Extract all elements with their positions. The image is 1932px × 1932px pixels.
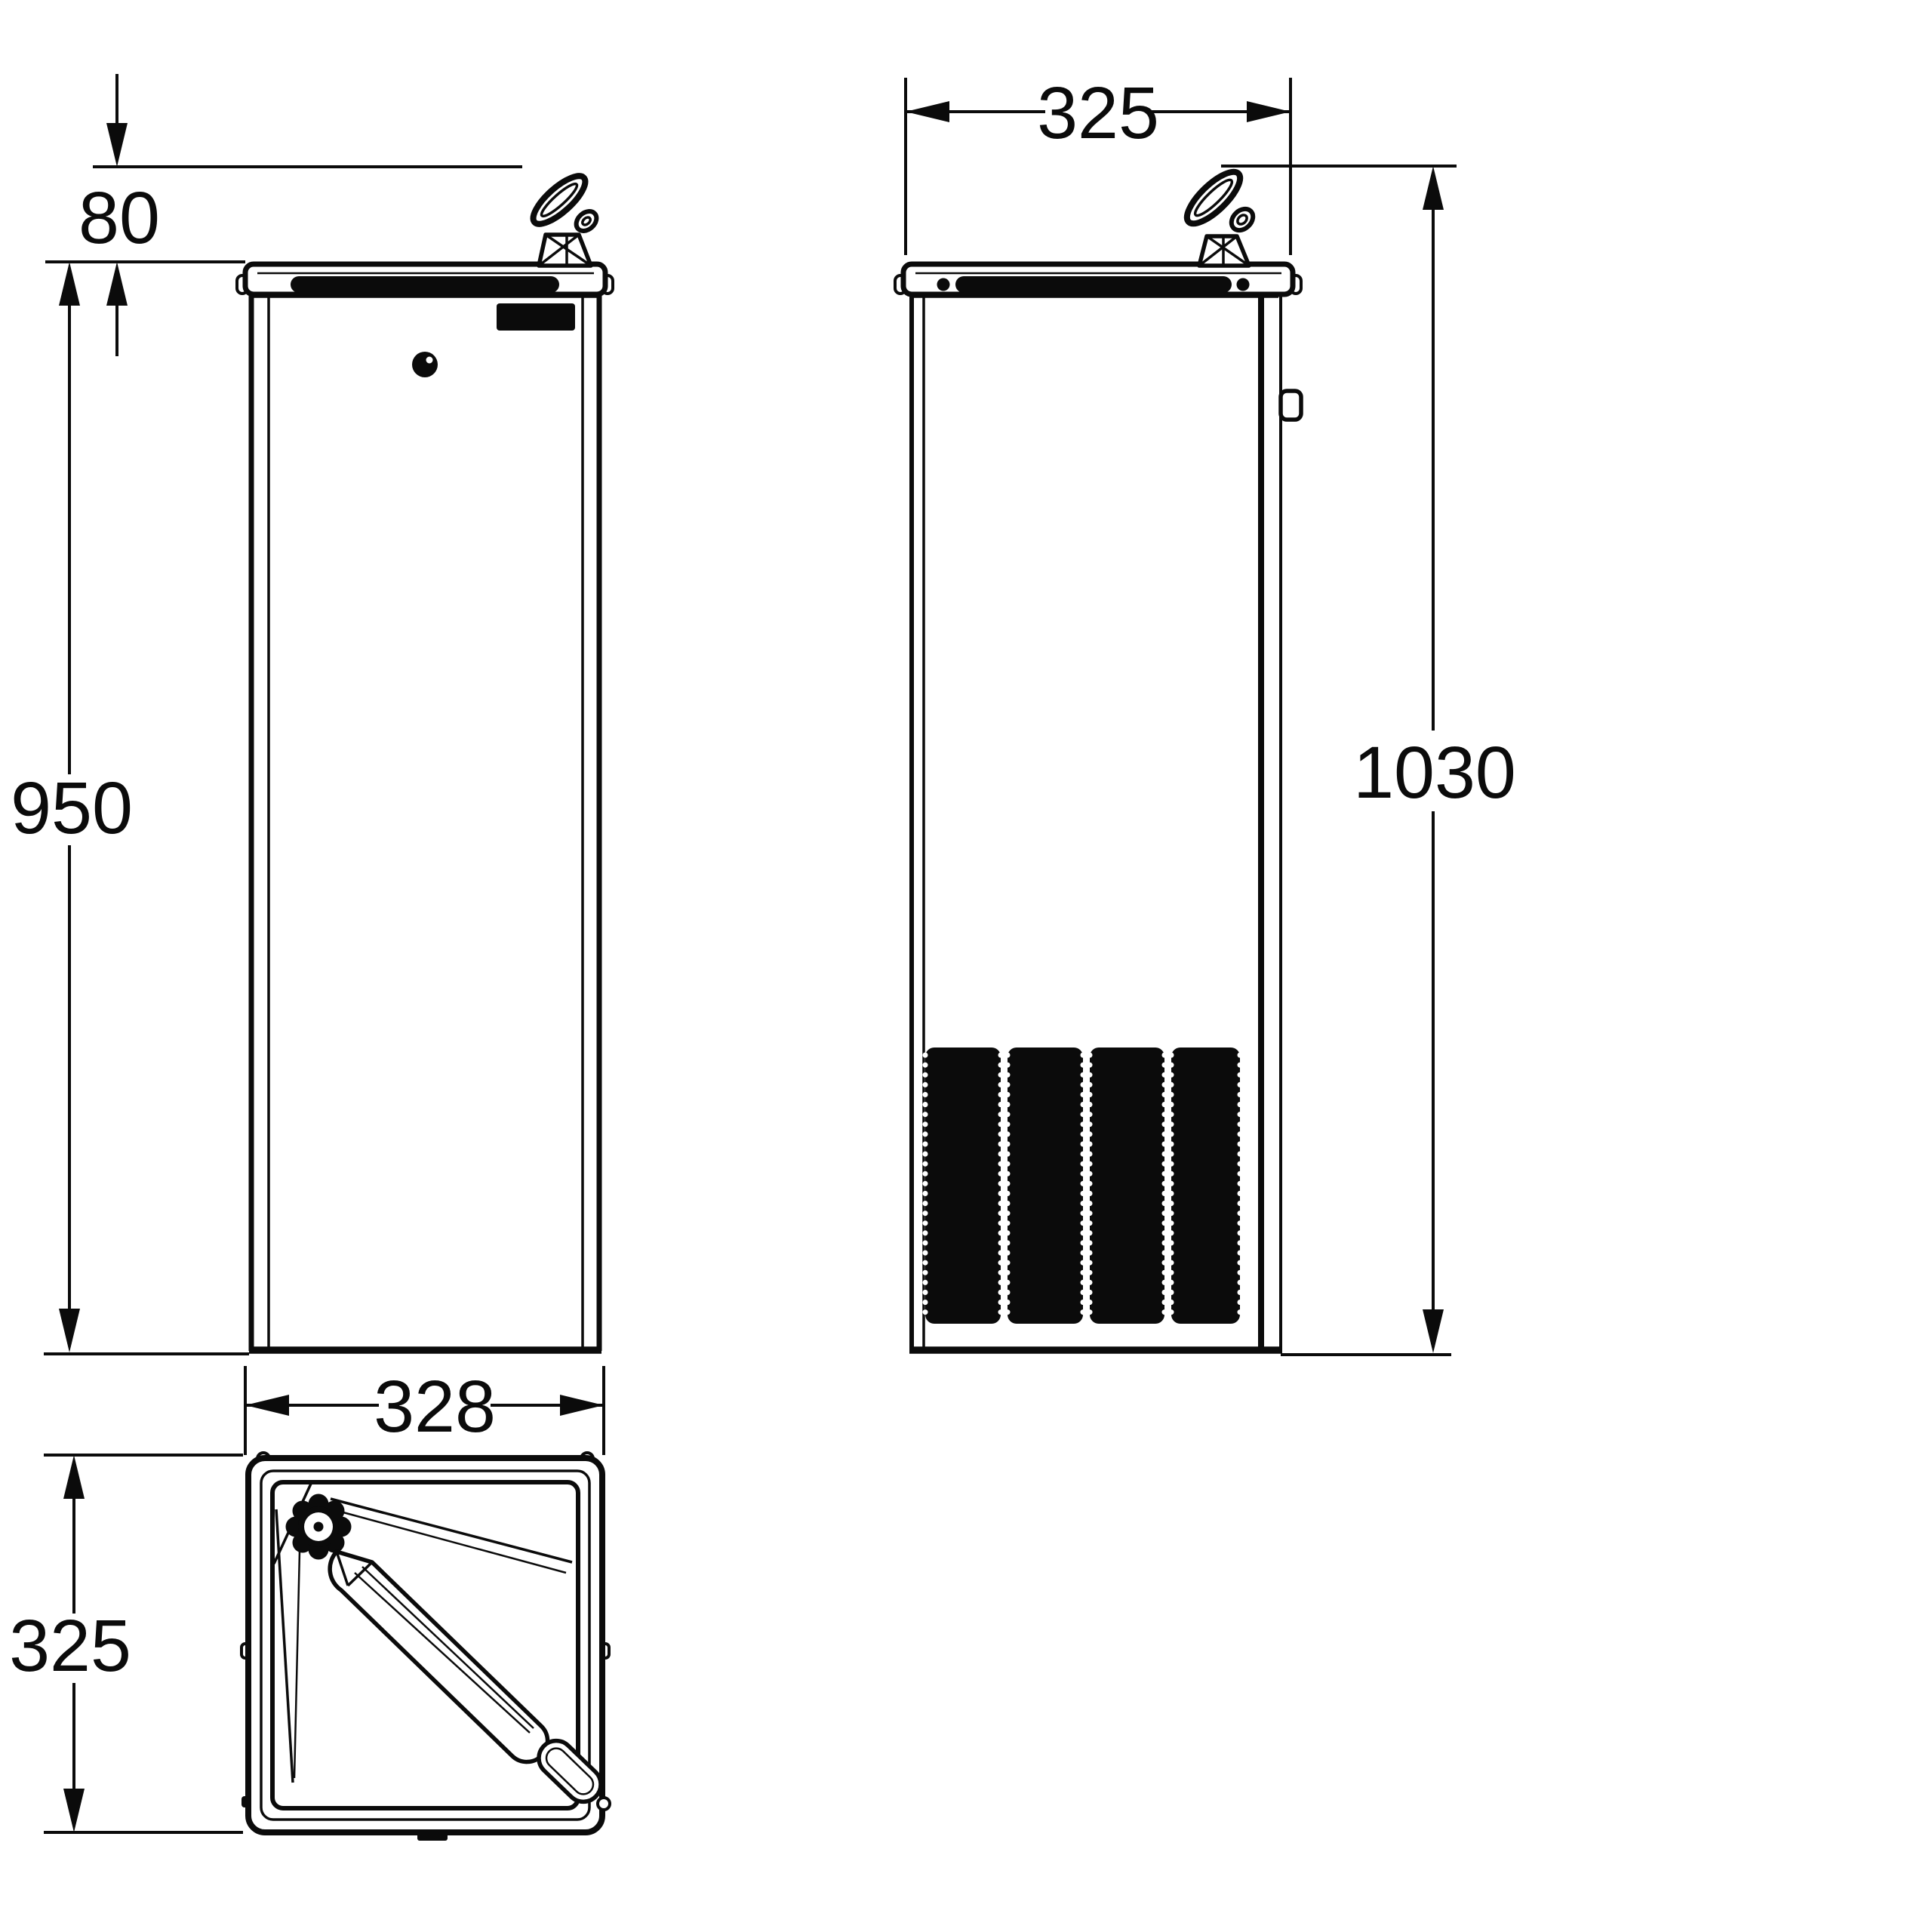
handwheel-center xyxy=(314,1522,324,1532)
dimension-front-body-height: 950 xyxy=(11,262,249,1354)
arrow-left-icon xyxy=(906,101,949,122)
side-basin-slot xyxy=(955,276,1232,293)
grille-bar xyxy=(1008,1048,1083,1324)
brand-label xyxy=(497,303,575,331)
push-button-highlight xyxy=(426,357,433,364)
dim-label-325-top: 325 xyxy=(1037,72,1159,154)
bubbler-mouthpiece-inner xyxy=(581,216,592,226)
arrow-down-icon xyxy=(59,1309,80,1352)
dimension-side-overall-height: 1030 xyxy=(1221,166,1516,1355)
bubbler-mouthpiece-inner xyxy=(1235,214,1248,226)
rear-fitting-knob xyxy=(1281,391,1301,420)
arrow-up-icon xyxy=(106,262,128,306)
arrow-down-icon xyxy=(106,123,128,167)
front-basin-slot xyxy=(291,276,559,293)
arrow-up-icon xyxy=(1423,166,1444,210)
dimension-plan-depth: 325 xyxy=(9,1455,243,1832)
dim-label-1030: 1030 xyxy=(1353,731,1516,814)
arrow-right-icon xyxy=(1247,101,1291,122)
arrow-down-icon xyxy=(1423,1309,1444,1353)
dimension-plan-width: 328 xyxy=(245,1365,604,1455)
spout-tip xyxy=(598,1798,610,1810)
arrow-down-icon xyxy=(63,1789,85,1832)
drawing-canvas: 80 950 xyxy=(0,0,1932,1932)
bottom-tab xyxy=(417,1832,448,1841)
cap-screw-left xyxy=(937,278,950,291)
left-bottom-nub xyxy=(241,1796,250,1807)
bubbler-mouthpiece xyxy=(1227,205,1257,234)
drain-valve-handwheel xyxy=(286,1494,352,1560)
dim-label-325-bottom: 325 xyxy=(9,1604,131,1687)
grille-bar xyxy=(1171,1048,1240,1324)
dimension-front-spout-height: 80 xyxy=(45,74,522,356)
technical-drawing: 80 950 xyxy=(0,0,1932,1932)
dim-label-950: 950 xyxy=(11,767,133,849)
front-view xyxy=(237,169,613,1351)
grille-bar xyxy=(925,1048,1001,1324)
dim-label-328: 328 xyxy=(374,1365,496,1447)
bubbler-tap-side xyxy=(1180,165,1257,266)
bubbler-mouthpiece xyxy=(572,208,600,235)
grille-bar xyxy=(1090,1048,1164,1324)
arrow-left-icon xyxy=(245,1395,289,1416)
dim-label-80: 80 xyxy=(78,177,160,259)
arrow-up-icon xyxy=(63,1455,85,1499)
push-button xyxy=(412,352,438,377)
side-view xyxy=(895,165,1301,1350)
bottom-view xyxy=(241,1453,610,1841)
arrow-up-icon xyxy=(59,262,80,306)
cap-screw-right xyxy=(1237,278,1250,291)
ventilation-grille xyxy=(925,1048,1240,1324)
bubbler-tap-front xyxy=(527,169,601,266)
arrow-right-icon xyxy=(560,1395,604,1416)
